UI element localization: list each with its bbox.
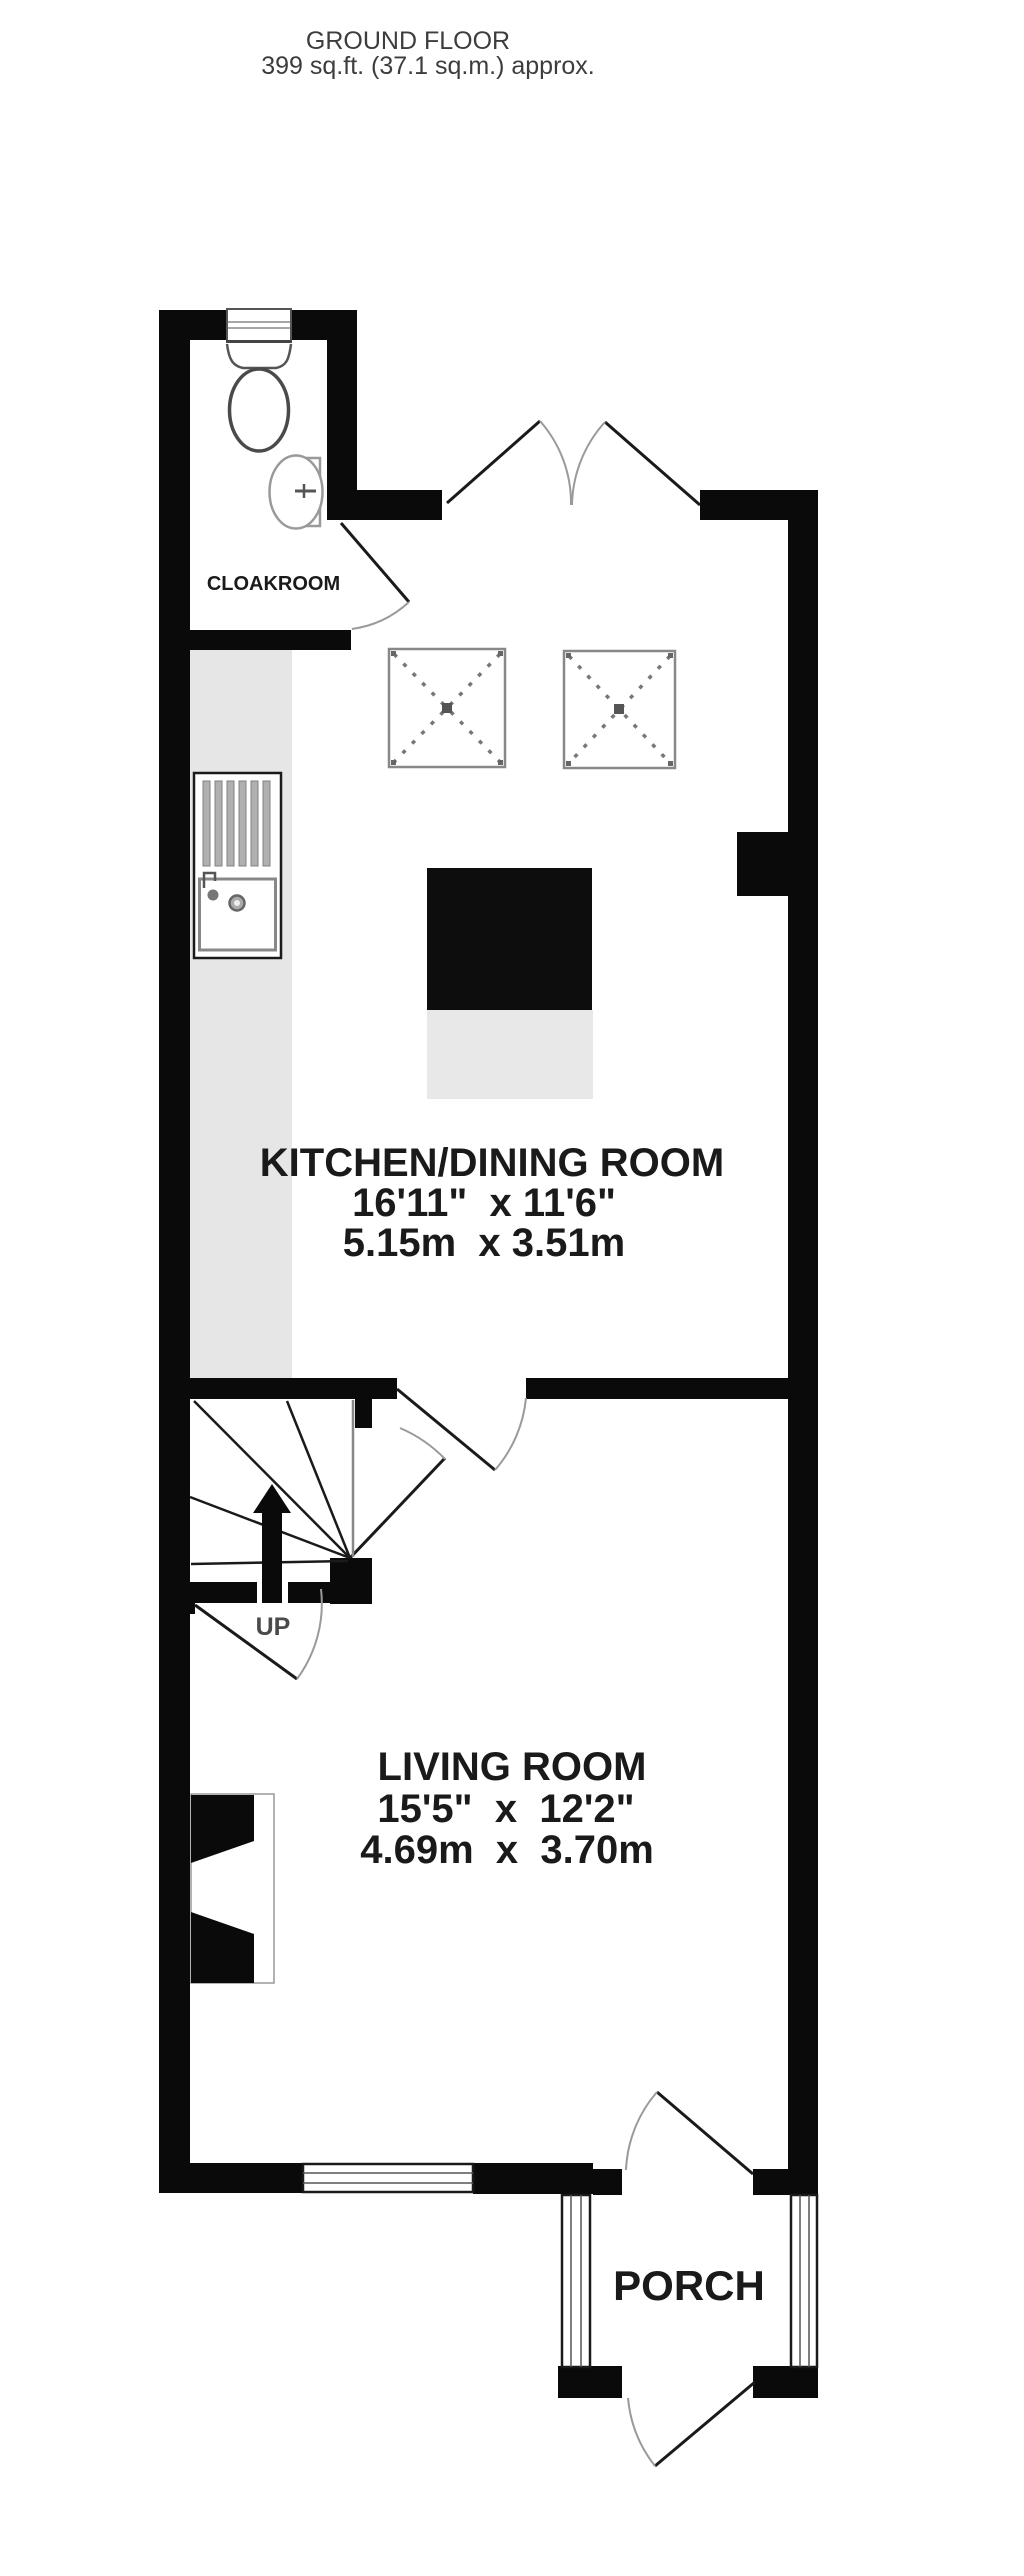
svg-text:LIVING ROOM: LIVING ROOM — [378, 1745, 647, 1789]
svg-text:GROUND FLOOR: GROUND FLOOR — [306, 27, 510, 55]
svg-text:4.69m x 3.70m: 4.69m x 3.70m — [360, 1828, 654, 1872]
svg-text:5.15m x 3.51m: 5.15m x 3.51m — [343, 1221, 625, 1265]
svg-text:15'5" x 12'2": 15'5" x 12'2" — [377, 1787, 634, 1831]
svg-text:PORCH: PORCH — [613, 2262, 765, 2309]
svg-text:399 sq.ft. (37.1 sq.m.) approx: 399 sq.ft. (37.1 sq.m.) approx. — [261, 52, 595, 80]
svg-text:KITCHEN/DINING ROOM: KITCHEN/DINING ROOM — [260, 1141, 724, 1185]
svg-text:CLOAKROOM: CLOAKROOM — [207, 573, 340, 595]
svg-text:16'11" x 11'6": 16'11" x 11'6" — [352, 1181, 616, 1225]
svg-text:UP: UP — [256, 1613, 291, 1641]
